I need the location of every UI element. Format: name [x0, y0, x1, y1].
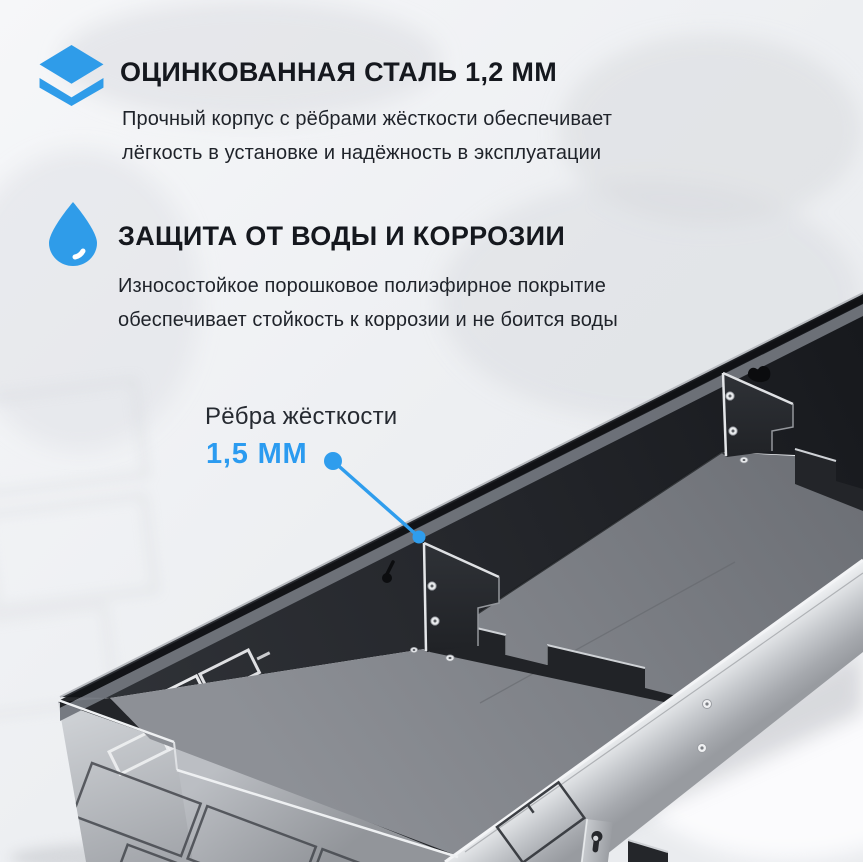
layers-icon — [38, 45, 105, 107]
rivet — [726, 392, 734, 400]
feature-steel-line-2: лёгкость в установке и надёжность в эксп… — [122, 142, 601, 164]
water-drop-icon — [47, 202, 99, 266]
feature-steel-description: Прочный корпус с рёбрами жёсткости обесп… — [122, 102, 612, 170]
rivet — [446, 655, 454, 661]
feature-corrosion-description: Износостойкое порошковое полиэфирное пок… — [118, 269, 618, 337]
rivet — [431, 617, 439, 625]
rivet — [410, 647, 417, 652]
callout-label: Рёбра жёсткости — [205, 403, 397, 431]
feature-steel-title: ОЦИНКОВАННАЯ СТАЛЬ 1,2 ММ — [120, 57, 557, 88]
product-infographic: ОЦИНКОВАННАЯ СТАЛЬ 1,2 ММ Прочный корпус… — [0, 0, 863, 862]
rivet — [729, 427, 737, 435]
feature-corrosion-title: ЗАЩИТА ОТ ВОДЫ И КОРРОЗИИ — [118, 221, 565, 252]
feature-corrosion-line-1: Износостойкое порошковое полиэфирное пок… — [118, 275, 606, 297]
feature-steel-line-1: Прочный корпус с рёбрами жёсткости обесп… — [122, 108, 612, 130]
rivet — [428, 582, 436, 590]
rivet — [703, 700, 712, 709]
mounting-bracket — [580, 819, 612, 862]
rivet — [698, 744, 707, 753]
feature-corrosion-line-2: обеспечивает стойкость к коррозии и не б… — [118, 309, 618, 331]
rivet — [740, 457, 748, 463]
callout-value: 1,5 ММ — [206, 438, 308, 471]
